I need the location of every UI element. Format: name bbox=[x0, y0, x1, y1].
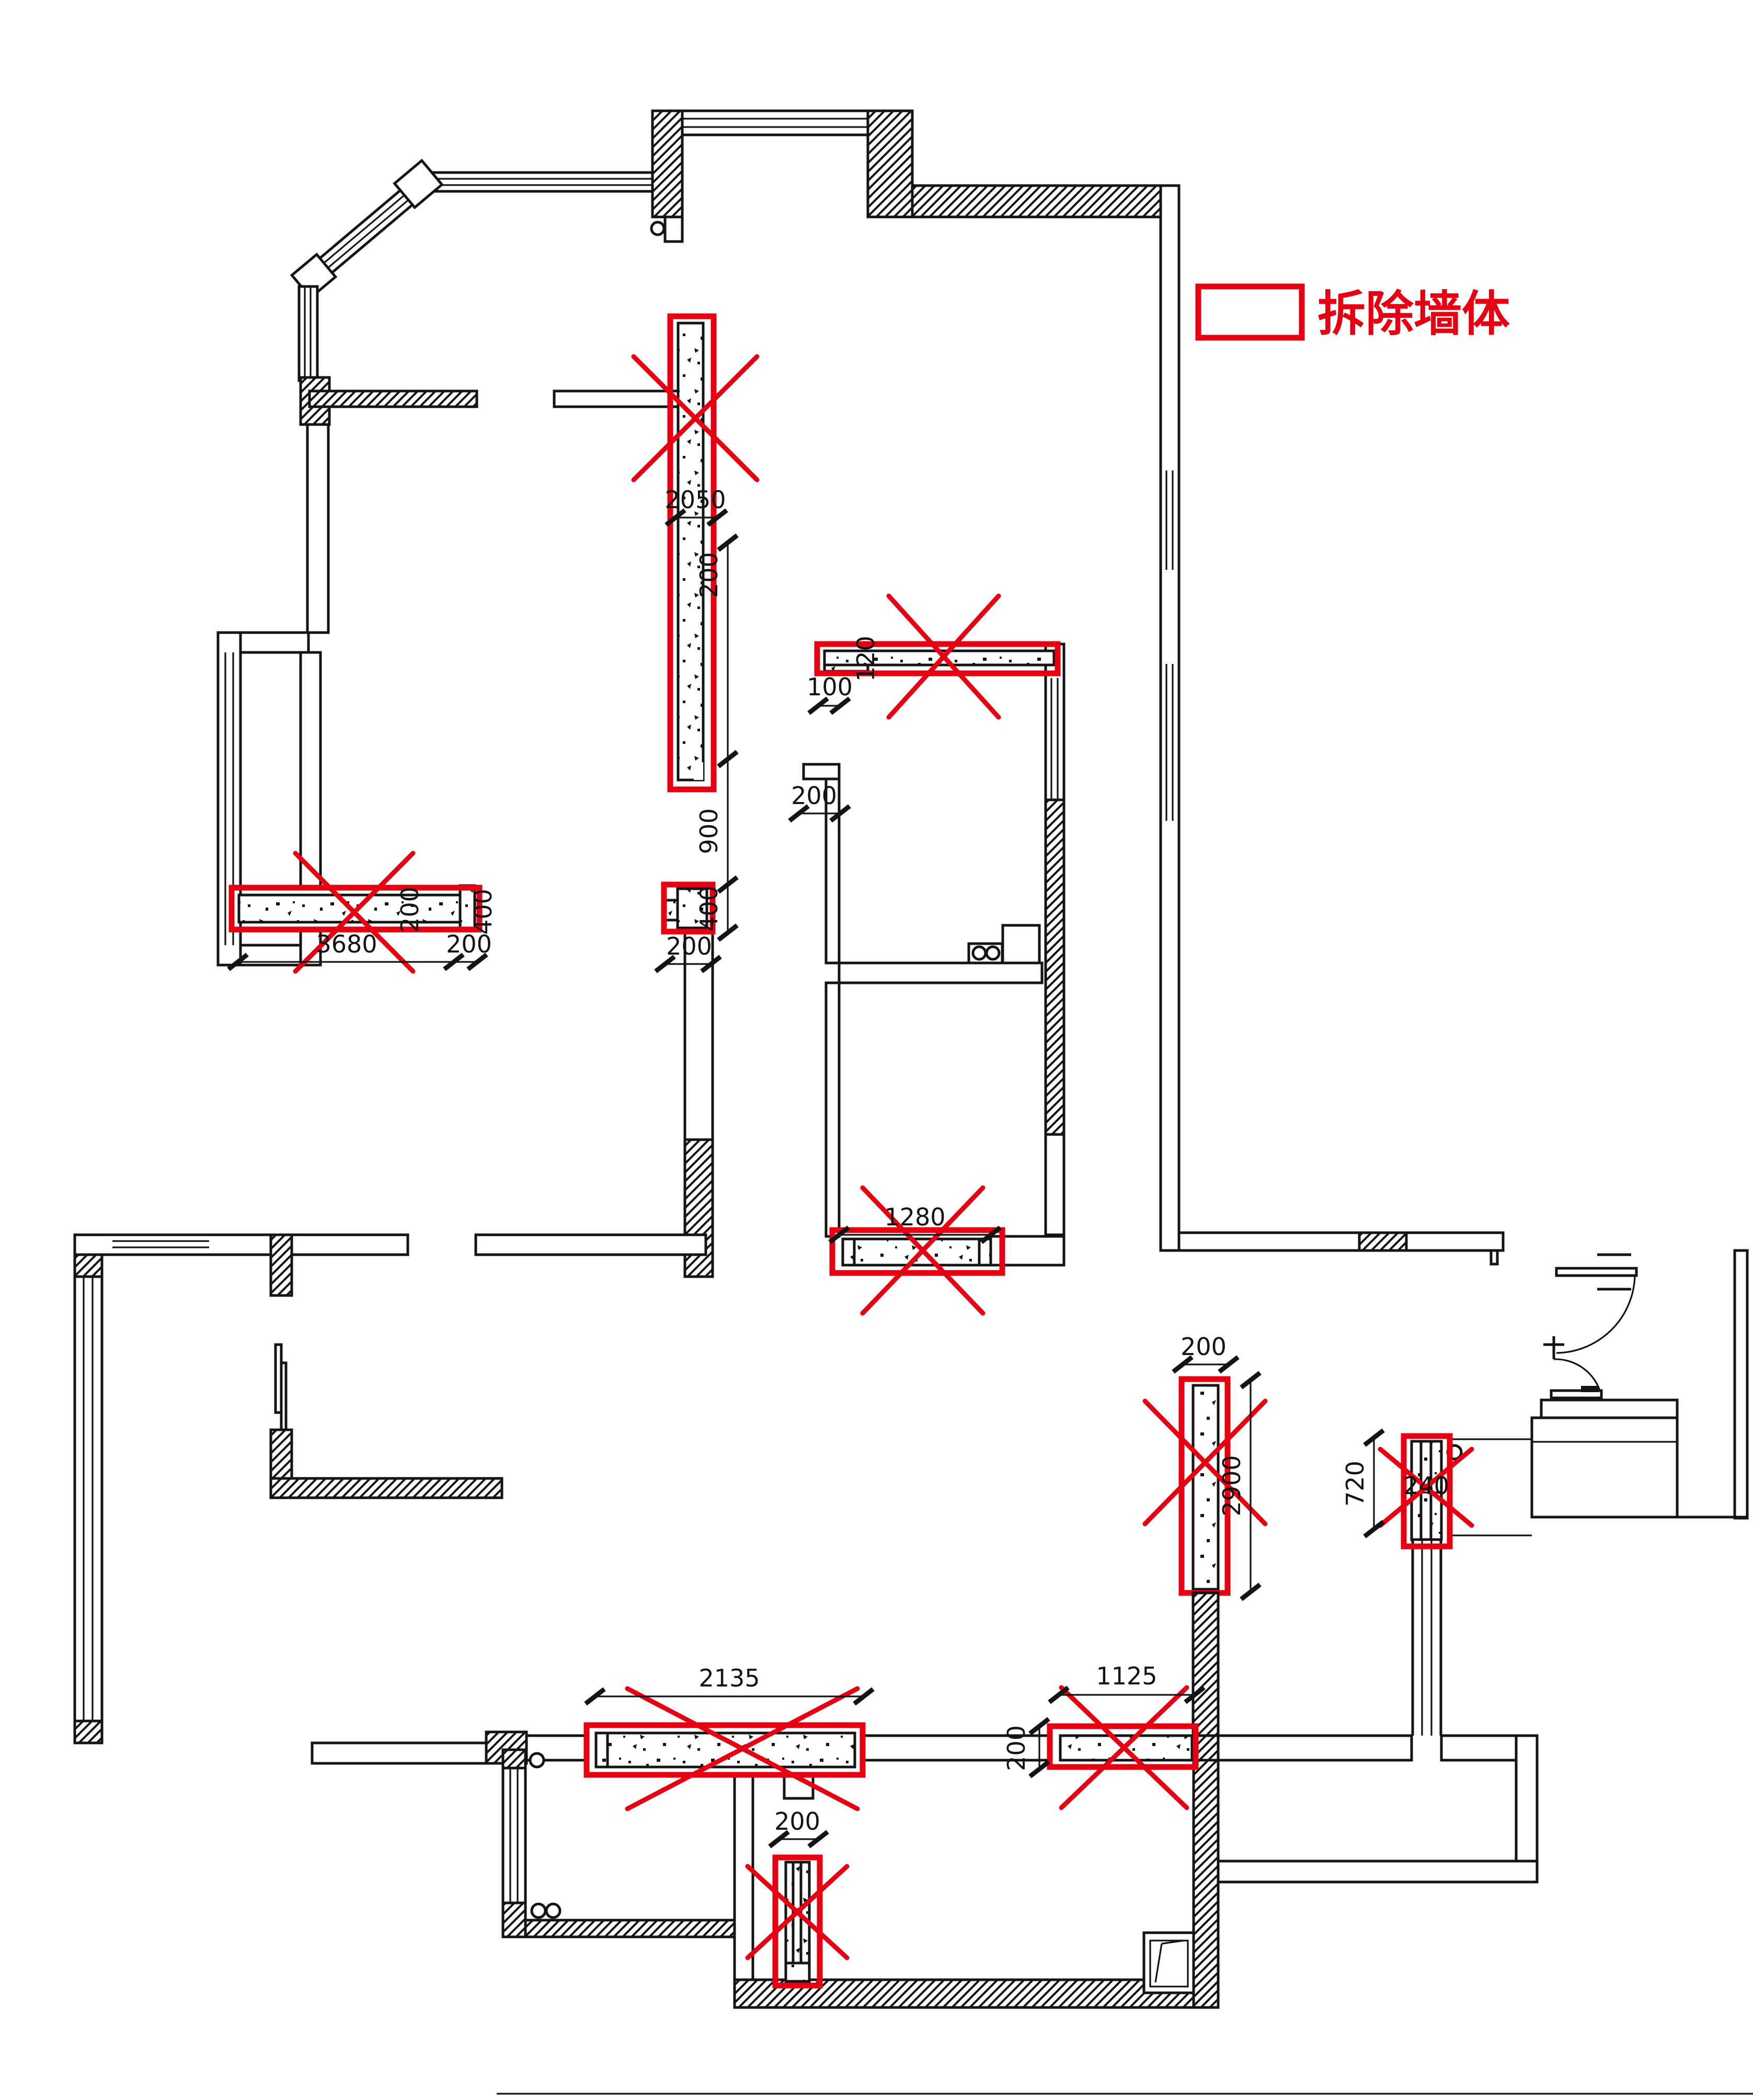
dim-240: 240 bbox=[1403, 1472, 1449, 1500]
entry-door-lower bbox=[1551, 1359, 1601, 1398]
floor-plan: 2050 200 900 400 3680 200 200 400 100 12… bbox=[0, 0, 1753, 2100]
diagonal-bay-window bbox=[292, 160, 442, 297]
sliding-panel bbox=[281, 1363, 286, 1435]
diagonal-corner-post bbox=[395, 160, 442, 208]
legend: 拆除墙体 bbox=[1198, 286, 1510, 342]
lower-wing bbox=[75, 1235, 1753, 2094]
door-swing-arc bbox=[1556, 1276, 1635, 1353]
inner-hatched-wall bbox=[271, 1478, 502, 1498]
dim-2135: 2135 bbox=[698, 1664, 760, 1692]
bay-left-pier bbox=[652, 111, 682, 217]
entry-cabinet bbox=[1532, 1418, 1677, 1517]
bay-knob-circle bbox=[651, 222, 664, 235]
dim-2900: 2900 bbox=[1218, 1455, 1246, 1516]
dim-200-wall: 200 bbox=[396, 887, 424, 933]
top-left-window bbox=[422, 173, 652, 191]
top-right-wall bbox=[912, 186, 1179, 217]
top-bay-window bbox=[682, 111, 868, 135]
plumbing-circle bbox=[546, 1904, 560, 1918]
stove-burner bbox=[987, 947, 999, 959]
bottom-right-room bbox=[1218, 1736, 1537, 1882]
demolition-floor-plan-page: 2050 200 900 400 3680 200 200 400 100 12… bbox=[0, 0, 1753, 2100]
dim-200-r8: 200 bbox=[774, 1807, 820, 1835]
corner-window-flue bbox=[1144, 1933, 1194, 1993]
bottom-room-left-wall bbox=[735, 1775, 753, 1980]
dim-1125: 1125 bbox=[1096, 1662, 1157, 1690]
sliding-door bbox=[276, 1345, 286, 1435]
plumbing-circle bbox=[530, 1753, 544, 1767]
dim-200-r5: 200 bbox=[1181, 1333, 1227, 1361]
stove-burner bbox=[973, 947, 986, 959]
dim-100: 100 bbox=[807, 673, 853, 701]
right-exterior-wall bbox=[1161, 186, 1179, 1250]
living-top-wall bbox=[75, 1235, 271, 1255]
bay-right-pier bbox=[868, 111, 912, 217]
dim-200-r6: 200 bbox=[1002, 1725, 1030, 1771]
plumbing-circle bbox=[532, 1904, 545, 1918]
legend-label: 拆除墙体 bbox=[1317, 286, 1510, 342]
kitchen-wall-stub bbox=[804, 764, 839, 779]
kitchen-bottom-wall bbox=[839, 963, 1042, 983]
corridor-left-wall bbox=[826, 983, 839, 1236]
corner-pier bbox=[1196, 1736, 1218, 1760]
dim-3680: 3680 bbox=[316, 930, 377, 958]
demolition-wall-2135 bbox=[587, 1689, 863, 1809]
bedroom-divider bbox=[554, 391, 678, 407]
dim-1280: 1280 bbox=[884, 1203, 945, 1231]
entry-top-wall bbox=[1179, 1233, 1359, 1250]
dim-2050: 2050 bbox=[664, 486, 726, 514]
bottom-room-right-wall bbox=[1194, 1760, 1218, 2007]
door-stop bbox=[1582, 1386, 1598, 1392]
demolition-wall-2900 bbox=[1145, 1379, 1265, 1593]
dim-200-r1: 200 bbox=[695, 552, 723, 598]
center-wall-pier bbox=[685, 1140, 713, 1277]
door-leaf bbox=[1556, 1268, 1636, 1276]
legend-swatch bbox=[1198, 286, 1302, 338]
entry-ledge bbox=[1541, 1400, 1677, 1418]
bay-post bbox=[665, 217, 682, 242]
bedroom-divider-hatched bbox=[310, 391, 477, 407]
bathroom-window bbox=[503, 1768, 525, 1903]
left-wall bbox=[307, 424, 328, 633]
dim-200-kitchen: 200 bbox=[791, 782, 837, 810]
dim-720: 720 bbox=[1341, 1461, 1369, 1507]
dim-400-chain: 400 bbox=[695, 886, 723, 932]
door-frame bbox=[1491, 1250, 1497, 1264]
wall-below-2900 bbox=[1193, 1593, 1218, 1736]
entry-door-upper bbox=[1543, 1255, 1636, 1359]
living-pier-top bbox=[271, 1235, 292, 1295]
demolition-wall-1125 bbox=[1050, 1688, 1196, 1808]
center-wall bbox=[685, 932, 713, 1140]
entry-top-pier bbox=[1359, 1233, 1406, 1250]
kitchen bbox=[804, 764, 1042, 983]
living-left-window bbox=[75, 1255, 102, 1743]
dim-900: 900 bbox=[695, 808, 723, 854]
entry bbox=[1179, 1233, 1747, 1736]
porch-right-wall bbox=[1735, 1250, 1747, 1518]
demolition-pier-200 bbox=[748, 1857, 847, 1986]
kitchen-right-wall bbox=[1046, 644, 1064, 1235]
dim-400-wall: 400 bbox=[469, 889, 497, 935]
hall-top-wall2 bbox=[476, 1235, 706, 1255]
dim-120: 120 bbox=[852, 636, 880, 682]
kitchen-counter-step bbox=[1003, 925, 1039, 963]
living-pier-bottom bbox=[271, 1430, 292, 1478]
left-upper-window bbox=[299, 286, 317, 381]
hall-top-wall bbox=[292, 1235, 408, 1255]
entry-top-wall2 bbox=[1406, 1233, 1503, 1250]
